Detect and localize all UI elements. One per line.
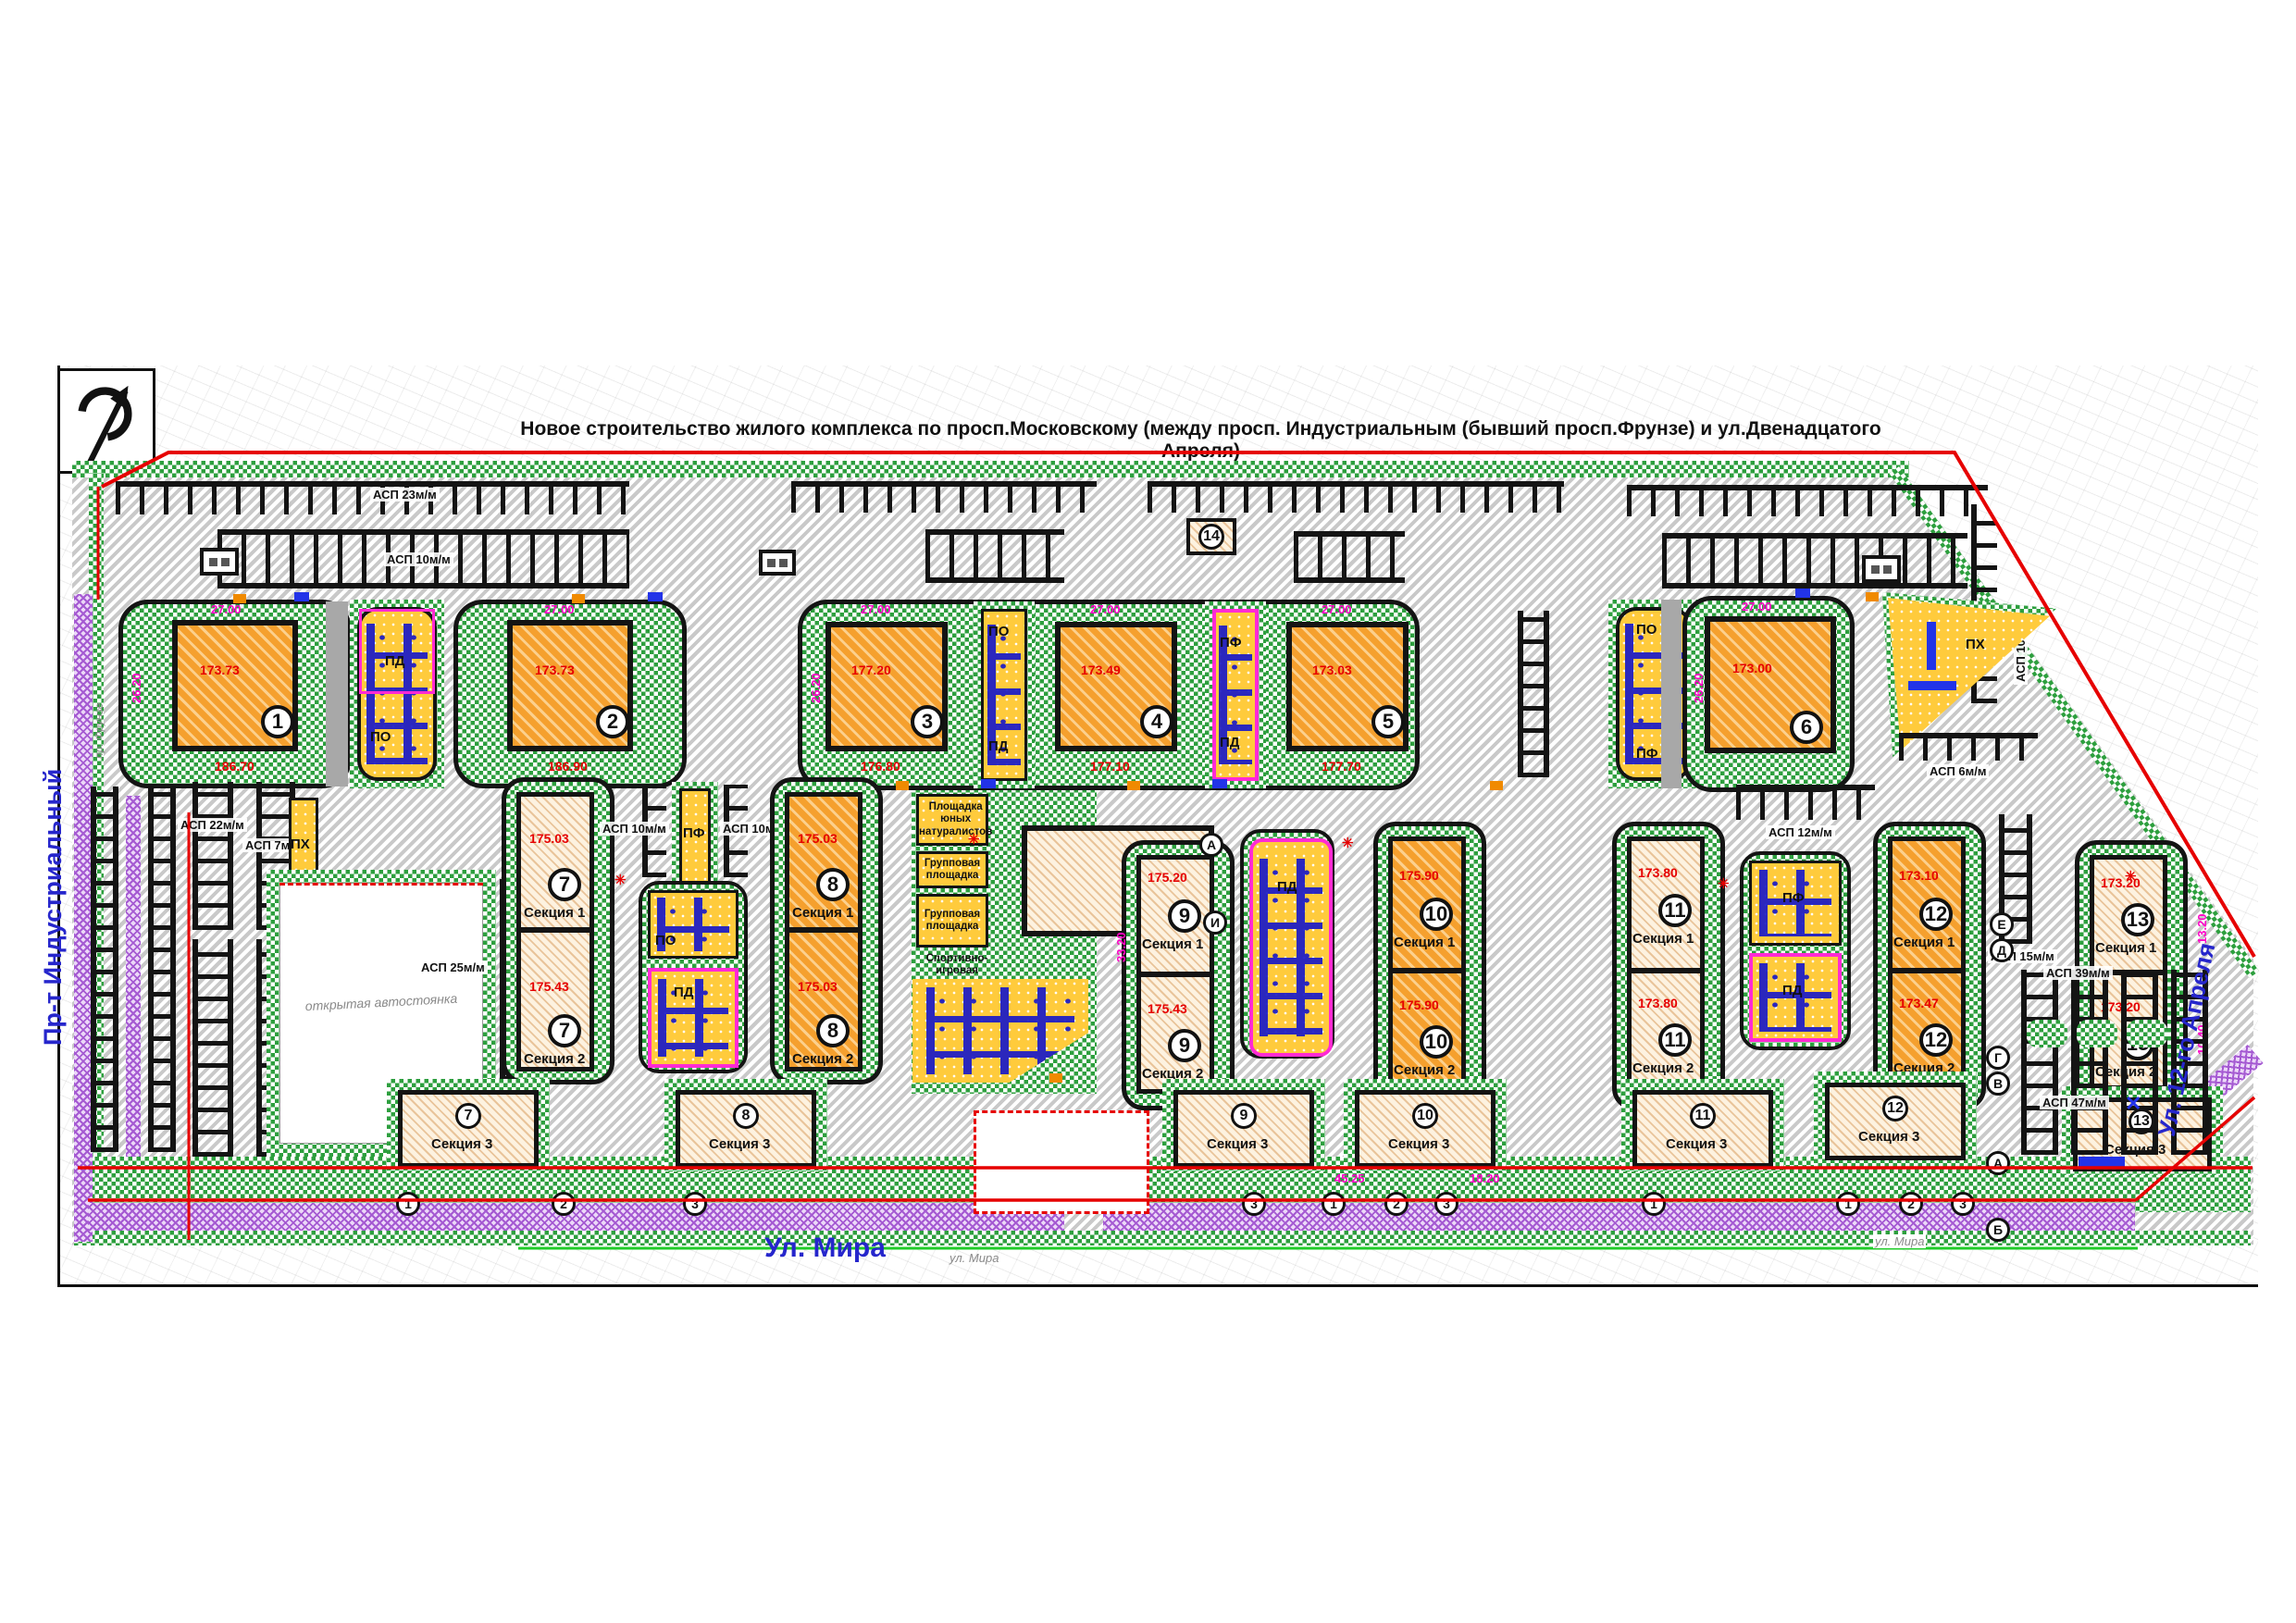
frame-bottom [57,1284,2258,1287]
playground-named: Групповая площадка [916,851,988,888]
building-number: 2 [596,705,629,738]
section-label: Секция 2 [1394,1062,1455,1078]
parking-stalls [1662,533,1967,588]
elevation-mark: 177.10 [1090,759,1130,774]
elevation-mark: 175.03 [798,831,838,846]
playground-code: ПФ [1636,746,1658,762]
stop-marker [2079,1157,2125,1168]
axis-number: 3 [1242,1192,1266,1216]
building-number: 14 [1198,524,1224,550]
dimension: 33.20 [1114,932,1128,962]
gate-structure [1862,555,1901,583]
building-number: 12 [1919,1023,1953,1057]
sidewalk-bottom-a [88,1203,1064,1231]
elevation-mark: 175.90 [1399,997,1439,1012]
axis-number: 3 [1951,1192,1975,1216]
axis-letter: Е [1990,912,2014,936]
dimension: 18.20 [1470,1171,1500,1185]
section-divider [1627,968,1705,973]
green-strip-top [72,461,1909,477]
building-number: 5 [1371,705,1405,738]
axis-number: 1 [1642,1192,1666,1216]
building-number: 10 [1420,1025,1453,1059]
section-label: Секция 1 [1893,935,1955,950]
parking-stalls [192,782,233,930]
hydrant-marker-icon: ✳ [614,872,627,888]
parking-stalls [1736,785,1875,820]
parking-stalls [91,787,118,1152]
section-divider [1388,968,1466,973]
parking-label: АСП 39м/м [2043,966,2113,980]
section-label: Секция 3 [1207,1136,1268,1152]
section-label: Секция 2 [1632,1060,1694,1076]
elevation-mark: 173.80 [1638,865,1678,880]
playground [648,968,738,1068]
parking-label: АСП 6м/м [1927,764,1989,778]
section-label: Секция 2 [524,1051,585,1067]
section-label: Секция 2 [792,1051,853,1067]
street-label-left: Пр-т Индустриальный [39,712,68,1046]
playground-code: ПД [385,653,404,669]
axis-letter: А [1986,1151,2010,1175]
building-number: 1 [261,705,294,738]
playground-code: ПО [1636,622,1657,638]
parking-label: АСП 25м/м [418,960,488,974]
section-divider [785,927,863,933]
building-number: 9 [1168,1029,1201,1062]
building-number: 3 [911,705,944,738]
playground-named: Групповая площадка [916,894,988,948]
section-divider [1136,972,1214,977]
elevation-mark: 186.90 [548,759,588,774]
elevation-mark: 173.00 [1732,661,1772,675]
axis-number: 1 [396,1192,420,1216]
playground-code: ПД [1220,735,1239,750]
section-label: Секция 3 [1858,1129,1919,1145]
building-number: 11 [1658,1023,1692,1057]
north-arrow-box [57,368,155,474]
curb-marker [572,594,585,603]
building-number: 8 [816,1014,850,1047]
hydrant-marker-icon: ✳ [968,831,980,848]
playground-code: ПХ [1966,637,1985,652]
building-section3 [1632,1090,1773,1168]
dimension: 27.00 [211,602,242,616]
elevation-mark: 173.10 [1899,868,1939,883]
curb-marker [648,592,663,601]
building-number: 12 [1919,898,1953,931]
curb-marker [233,594,246,603]
dimension: 13.20 [2195,913,2209,944]
axis-letter: Г [1986,1046,2010,1070]
curb-marker [896,781,909,790]
service-building: 14 [1186,518,1236,555]
curb-marker [1212,779,1227,788]
axis-number: 3 [1434,1192,1458,1216]
section-label: Секция 3 [1388,1136,1449,1152]
curb-marker [1127,781,1140,790]
driveway [326,601,348,787]
playground-code: ПО [988,624,1009,639]
playground-code: ПФ [1220,635,1242,650]
green-island [2127,1020,2167,1047]
parking-label: АСП 22м/м [178,818,247,832]
building-number: 7 [548,868,581,901]
gate-structure [200,548,239,576]
building-section3 [1355,1090,1496,1168]
elevation-mark: 176.80 [861,759,900,774]
dimension: 45.25 [1334,1171,1365,1185]
dimension: 27.00 [1322,602,1352,616]
axis-letter: В [1986,1072,2010,1096]
playground-label: Площадка юных натуралистов [919,801,992,838]
playground [1249,838,1333,1057]
elevation-mark: 173.80 [1638,996,1678,1010]
elevation-mark: 173.73 [535,663,575,677]
dimension: 26.20 [809,673,823,703]
building-number: 8 [733,1103,759,1129]
green-island [2027,1020,2067,1047]
parking-stalls [192,939,233,1157]
playground-code: ПФ [683,825,705,841]
building-number: 6 [1790,711,1823,744]
section-label: Секция 3 [709,1136,770,1152]
building-number: 11 [1690,1103,1716,1129]
section-divider [516,927,594,933]
hydrant-marker-icon: ✳ [1718,875,1730,892]
parking-label: АСП 12м/м [1766,825,1835,839]
section-label: Секция 1 [1142,936,1203,952]
existing-building [974,1110,1149,1214]
axis-number: 1 [1322,1192,1346,1216]
building-number: 4 [1140,705,1173,738]
street-label-left-old: пр. Фрунзе [93,648,105,759]
elevation-mark: 186.70 [215,759,254,774]
driveway [1661,600,1682,788]
playground-code: ПД [1277,879,1297,895]
elevation-mark: 173.47 [1899,996,1939,1010]
cross-marker-icon: ✕ [2125,1092,2141,1116]
parking-label: АСП 10м/м [384,552,453,566]
elevation-mark: 175.03 [798,979,838,994]
dimension: 27.00 [1742,600,1772,613]
axis-number: 2 [1384,1192,1409,1216]
building-number: 10 [1412,1103,1438,1129]
axis-letter: И [1203,911,1227,935]
building-number: 13 [2121,903,2154,936]
section-label: Секция 1 [1632,931,1694,947]
elevation-mark: 175.90 [1399,868,1439,883]
building-section3 [398,1090,539,1168]
building-number: 12 [1882,1096,1908,1121]
section-label: Секция 1 [2095,940,2156,956]
section-label: Секция 1 [1394,935,1455,950]
axis-number: 3 [683,1192,707,1216]
drawing-title: Новое строительство жилого комплекса по … [514,418,1888,463]
parking-label: АСП 10м/м [600,822,669,836]
elevation-mark: 177.20 [851,663,891,677]
parking-stalls [1899,733,2038,761]
parking-stalls [148,787,176,1152]
site-plan-sheet: Новое строительство жилого комплекса по … [0,0,2296,1623]
playground-code: ПО [655,933,676,948]
green-island [2077,1020,2117,1047]
dimension: 26.20 [130,673,143,703]
axis-number: 2 [1899,1192,1923,1216]
playground-code: ПХ [291,836,310,852]
playground-code: ПФ [1782,890,1805,906]
parking-stalls [1627,485,1988,516]
hydrant-marker-icon: ✳ [1342,835,1354,851]
dimension: 27.00 [861,602,891,616]
playground-code: ПД [674,985,693,1000]
building-number: 10 [1420,898,1453,931]
axis-letter: Д [1990,938,2014,962]
dimension: 27.00 [1090,602,1121,616]
section-label: Секция 1 [792,905,853,921]
axis-number: 2 [552,1192,576,1216]
parking-stalls [2021,970,2058,1155]
parking-stalls [1148,481,1564,513]
red-dashed-line [279,883,483,886]
elevation-mark: 173.73 [200,663,240,677]
curb-marker [1795,588,1810,598]
elevation-mark: 175.03 [529,831,569,846]
curb-marker [1866,592,1879,601]
section-label: Секция 1 [524,905,585,921]
north-arrow-icon [60,373,153,473]
section-label: Секция 3 [1666,1136,1727,1152]
building-number: 7 [548,1014,581,1047]
axis-number: 1 [1836,1192,1860,1216]
parking-label: АСП 47м/м [2040,1096,2109,1109]
playground-code: ПО [370,729,391,745]
elevation-mark: 175.20 [1148,870,1187,885]
dimension: 26.20 [1692,673,1706,703]
curb-marker [981,779,996,788]
section-label: Секция 3 [431,1136,492,1152]
gate-structure [759,550,796,576]
sidewalk-left [74,594,93,1242]
building-number: 9 [1231,1103,1257,1129]
parking-stalls [791,481,1097,513]
parking-stalls [1294,531,1405,583]
axis-letter: Б [1986,1218,2010,1242]
sidewalk-left2 [126,796,141,1157]
elevation-mark: 173.03 [1312,663,1352,677]
axis-letter: А [1199,833,1223,857]
parking-stalls [925,529,1064,583]
parking-label: АСП 23м/м [370,488,440,502]
carpet-rack-icon [1908,681,1956,690]
elevation-mark: 177.70 [1322,759,1361,774]
elevation-mark: 175.43 [529,979,569,994]
curb-marker [1049,1073,1062,1083]
building-number: 11 [1658,894,1692,927]
hydrant-marker-icon: ✳ [2125,868,2137,885]
building-number: 8 [816,868,850,901]
playground-label: Групповая площадка [919,909,986,933]
building-number: 7 [455,1103,481,1129]
playground-code: ПД [988,738,1008,754]
playground-fence [359,609,435,694]
building-section3 [676,1090,816,1168]
street-label-bottom: Ул. Мира [764,1233,886,1264]
section-divider [1888,968,1966,973]
street-label-bottom-survey: ул. Мира [949,1251,999,1265]
playground-code: ПД [1782,983,1802,998]
parking-stalls [1518,611,1549,777]
curb-marker [294,592,309,601]
parking-stalls [2071,970,2108,1155]
street-label-bottom-survey2: ул. Мира [1873,1234,1926,1248]
building-section3 [1173,1090,1314,1168]
dimension: 27.00 [544,602,575,616]
elevation-mark: 173.49 [1081,663,1121,677]
playground-label: Групповая площадка [919,858,986,882]
curb-marker [1490,781,1503,790]
building-section3 [1825,1083,1966,1160]
elevation-mark: 175.43 [1148,1001,1187,1016]
carpet-rack-icon [1927,622,1936,670]
building-number: 9 [1168,899,1201,933]
